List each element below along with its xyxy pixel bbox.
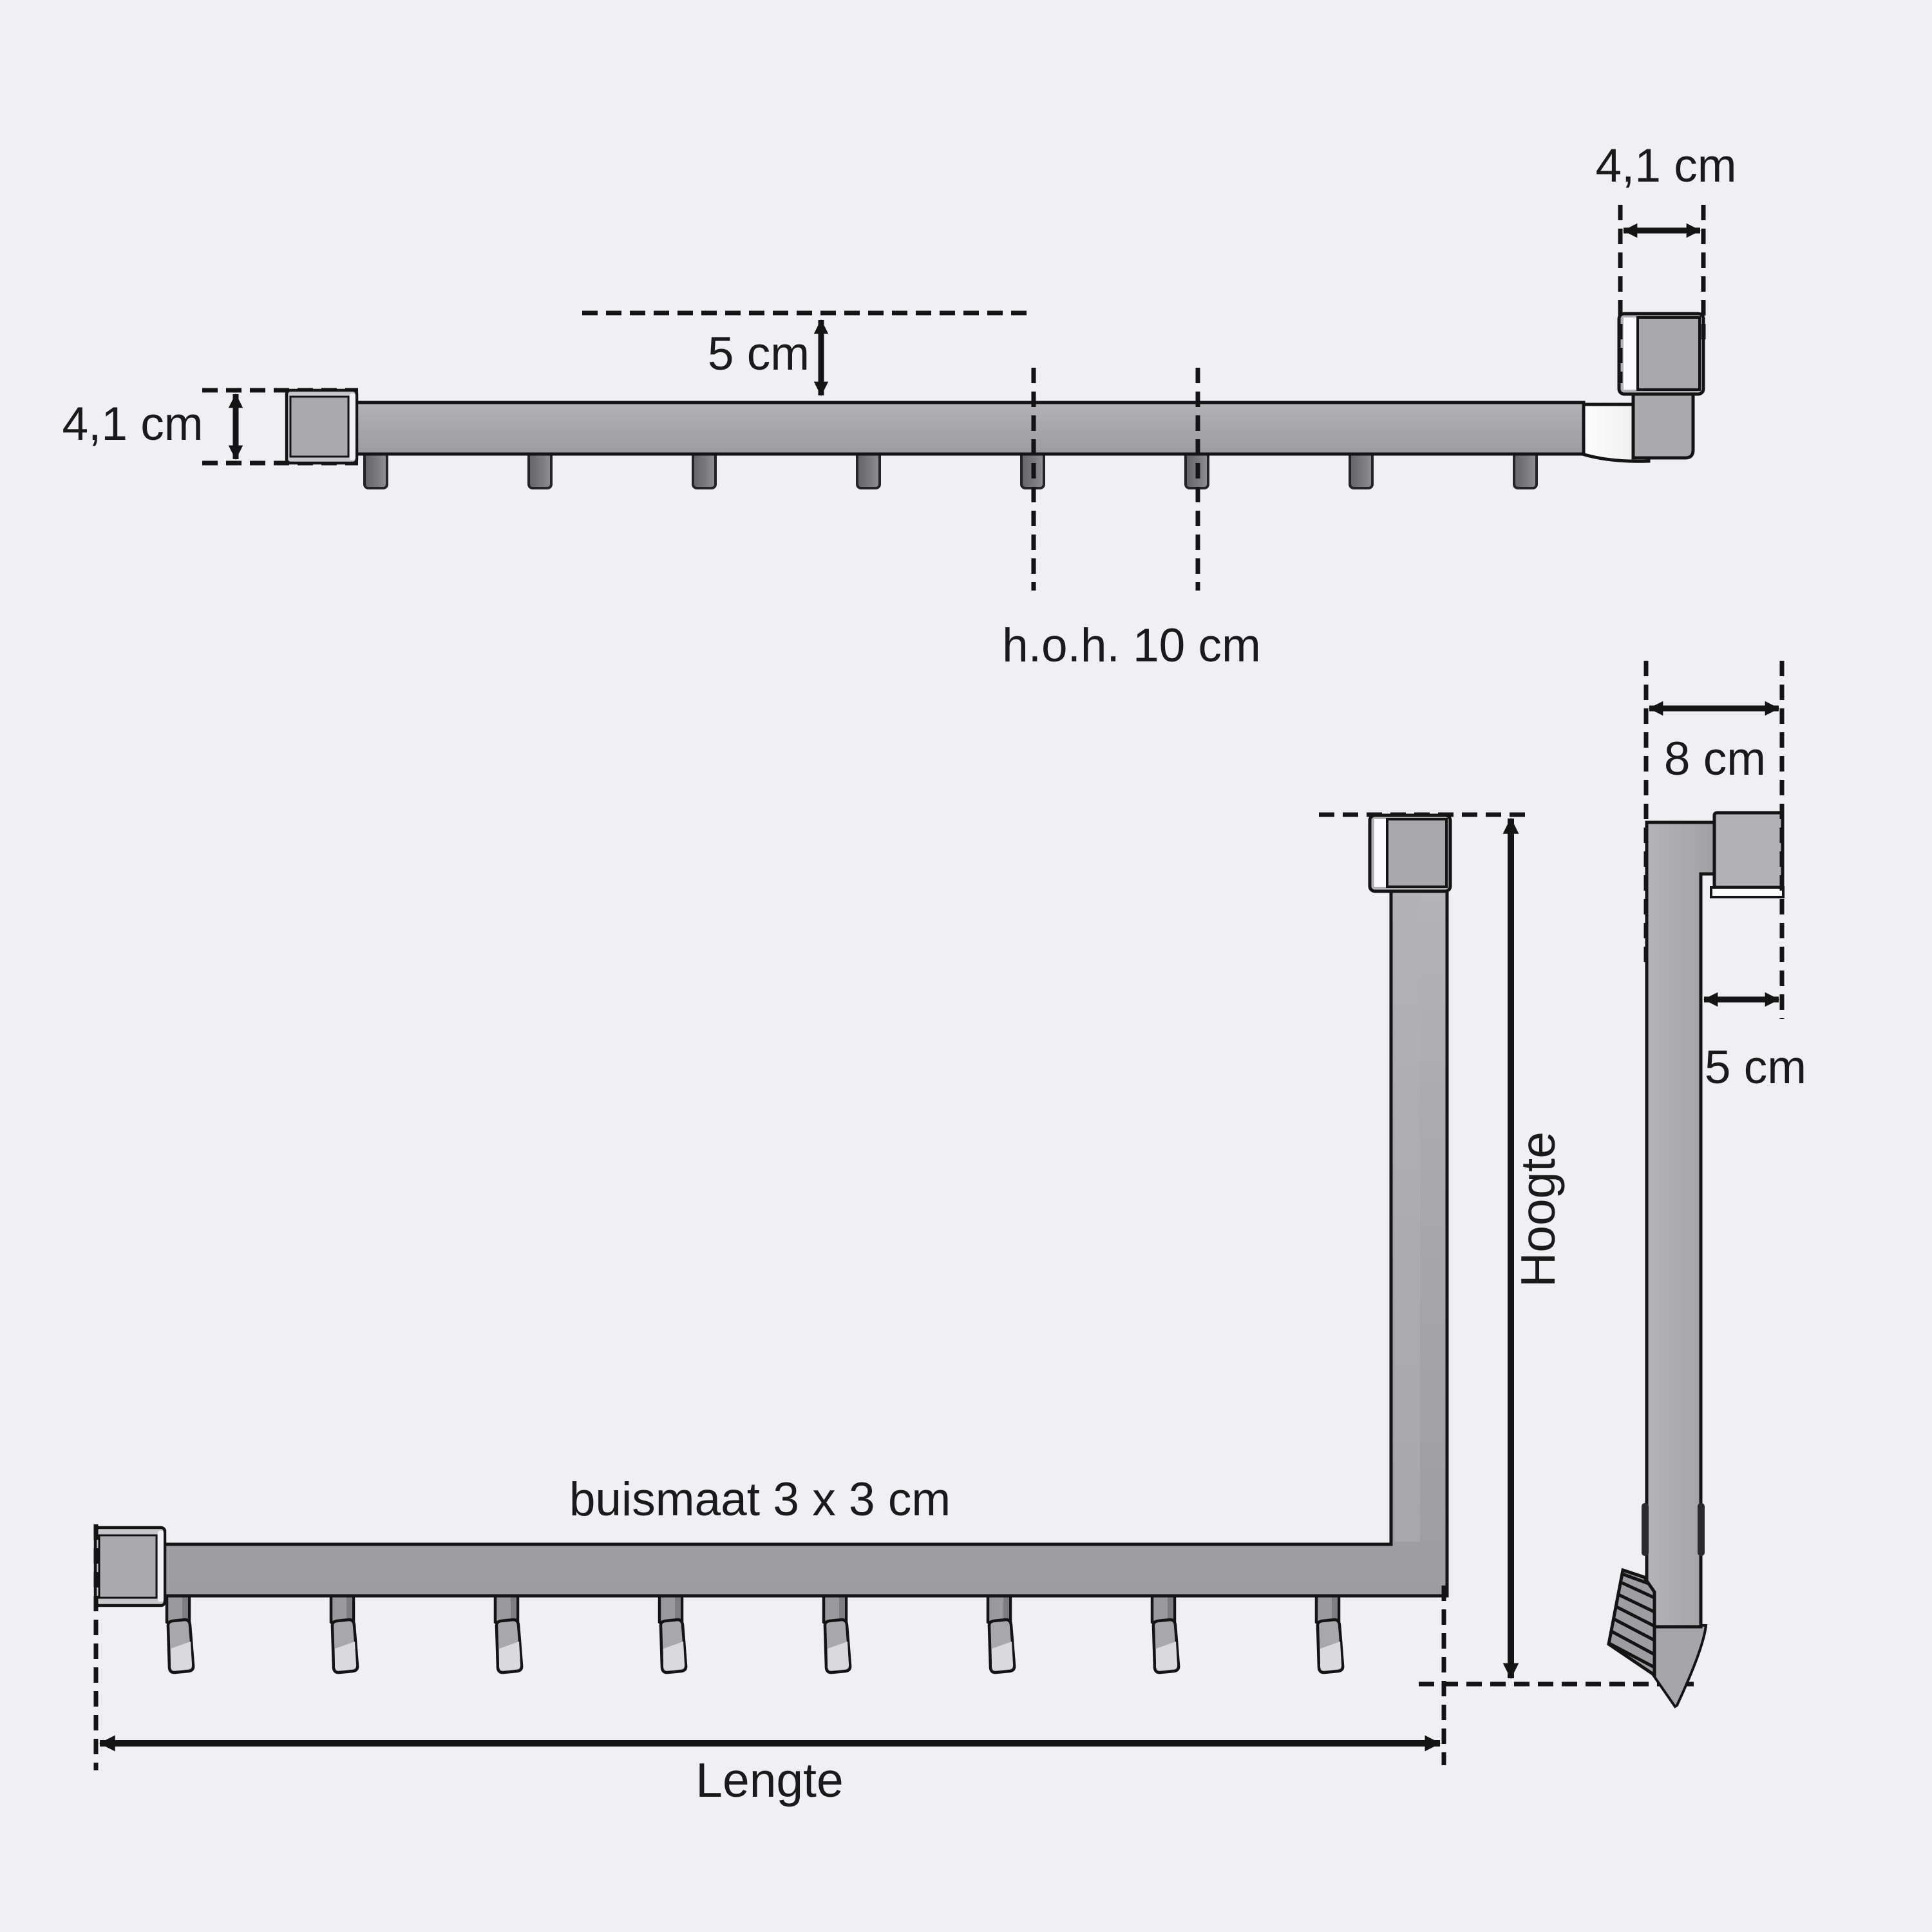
svg-text:5 cm: 5 cm: [708, 328, 810, 380]
svg-text:buismaat 3 x 3 cm: buismaat 3 x 3 cm: [569, 1473, 951, 1526]
svg-text:Lengte: Lengte: [696, 1753, 843, 1807]
svg-text:4,1 cm: 4,1 cm: [62, 398, 203, 450]
svg-text:h.o.h. 10 cm: h.o.h. 10 cm: [1002, 620, 1261, 672]
svg-text:8 cm: 8 cm: [1664, 733, 1766, 785]
svg-text:5 cm: 5 cm: [1705, 1041, 1806, 1094]
svg-text:Hoogte: Hoogte: [1511, 1132, 1565, 1287]
svg-text:4,1 cm: 4,1 cm: [1595, 140, 1736, 192]
